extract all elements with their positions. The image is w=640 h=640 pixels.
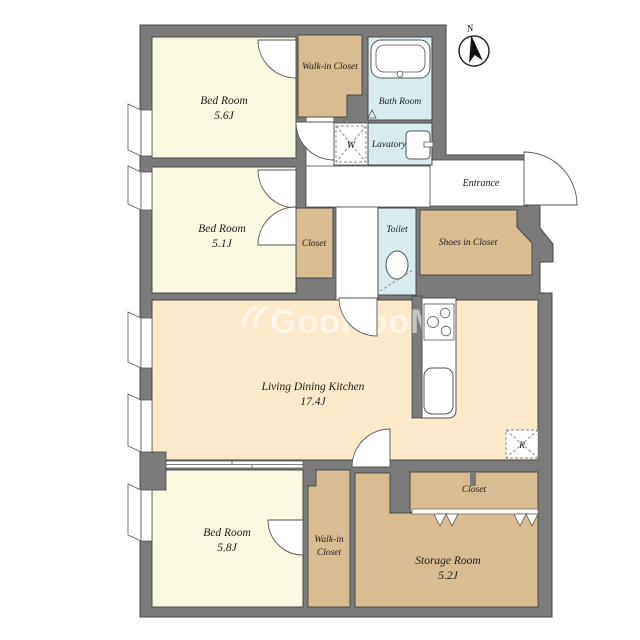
corridor-horizontal xyxy=(306,166,432,207)
window-ldk-upper xyxy=(128,312,141,368)
door-entrance xyxy=(524,152,577,205)
label-bed56-name: Bed Room xyxy=(200,95,248,107)
label-closet51: Closet xyxy=(302,239,327,249)
label-storage-area: 5.2J xyxy=(438,570,458,582)
corridor-lower-vertical xyxy=(336,207,378,300)
label-ldk-name: Living Dining Kitchen xyxy=(261,381,365,393)
label-bed51-name: Bed Room xyxy=(198,223,246,235)
window-bed56-gap xyxy=(141,110,152,156)
label-bed58-area: 5.8J xyxy=(217,542,237,554)
label-shoes: Shoes in Closet xyxy=(439,238,498,248)
compass-north-icon: N xyxy=(454,21,491,69)
label-lavatory: Lavatory xyxy=(371,140,407,150)
window-ldk-lower xyxy=(128,394,141,452)
floor-plan-page: GooRooM xyxy=(0,0,640,640)
label-bath: Bath Room xyxy=(379,97,422,107)
window-bed58-gap xyxy=(141,490,152,541)
label-fridge: R xyxy=(518,441,525,451)
bathtub-inner xyxy=(376,45,425,72)
label-storage-name: Storage Room xyxy=(415,555,480,567)
label-toilet: Toilet xyxy=(386,225,408,235)
compass-label: N xyxy=(465,23,476,35)
stove-burner-2 xyxy=(440,308,450,318)
stove-burner-3 xyxy=(441,326,451,336)
label-bed56-area: 5.6J xyxy=(214,110,234,122)
label-entrance: Entrance xyxy=(462,178,500,189)
toilet-icon xyxy=(386,251,408,279)
window-ldk-upper-gap xyxy=(141,318,152,368)
label-wic-bottom-1: Walk-in xyxy=(314,535,343,545)
window-bed56 xyxy=(128,104,141,156)
closet-divider xyxy=(470,472,476,486)
storage-closet-track xyxy=(412,509,538,514)
wall-pillar-ldk-bed58 xyxy=(140,452,166,490)
washbasin-tap xyxy=(424,142,433,147)
window-bed51-gap xyxy=(141,172,152,210)
floor-plan-drawing: GooRooM xyxy=(0,0,640,640)
label-ldk-area: 17.4J xyxy=(300,396,326,408)
stove-burner-1 xyxy=(428,317,439,328)
label-wic-bottom-2: Closet xyxy=(317,548,342,558)
bathtub-drain xyxy=(397,71,403,77)
window-bed58 xyxy=(128,484,141,541)
sink-icon xyxy=(424,368,453,414)
label-bed51-area: 5.1J xyxy=(212,238,232,250)
window-bed51 xyxy=(128,166,141,210)
label-wic-top: Walk-in Closet xyxy=(302,62,358,72)
window-ldk-lower-gap xyxy=(141,400,152,452)
label-bed58-name: Bed Room xyxy=(203,527,251,539)
label-storage-closet: Closet xyxy=(462,485,487,495)
